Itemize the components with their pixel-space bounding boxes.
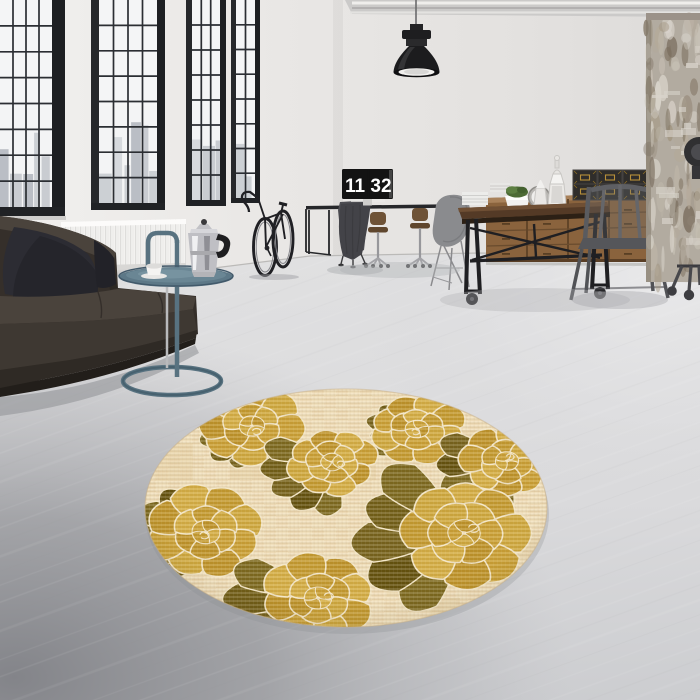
svg-text:32: 32 [370, 176, 391, 197]
svg-text:11: 11 [345, 176, 366, 197]
